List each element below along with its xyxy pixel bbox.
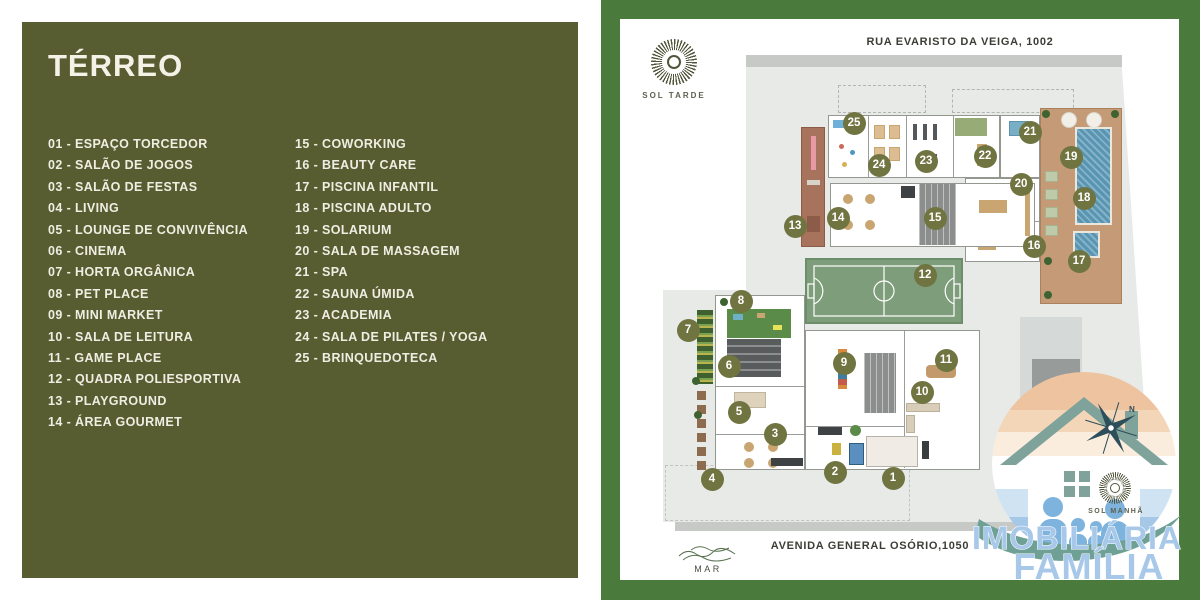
plan-marker-17: 17 <box>1068 250 1091 273</box>
stair-core <box>864 353 896 413</box>
gym-equipment <box>933 124 937 140</box>
round-table <box>865 194 875 204</box>
legend-item-04: 04 - LIVING <box>48 198 295 219</box>
tv-panel <box>922 441 929 459</box>
reading-sofa <box>906 415 915 433</box>
legend-item-22: 22 - SAUNA ÚMIDA <box>295 284 560 305</box>
compass-rose-icon: N <box>1082 399 1140 457</box>
plant <box>1044 291 1052 299</box>
plan-marker-6: 6 <box>718 355 741 378</box>
sun-morning-label: SOL MANHÃ <box>1072 508 1160 515</box>
agency-watermark-logo: IMOBILIÁRIA FAMÍLIA <box>965 359 1195 581</box>
legend-item-06: 06 - CINEMA <box>48 241 295 262</box>
legend-item-03: 03 - SALÃO DE FESTAS <box>48 177 295 198</box>
legend-item-01: 01 - ESPAÇO TORCEDOR <box>48 134 295 155</box>
plan-marker-25: 25 <box>843 112 866 135</box>
plan-marker-21: 21 <box>1019 121 1042 144</box>
plan-marker-10: 10 <box>911 381 934 404</box>
sun-afternoon-label: SOL TARDE <box>628 91 720 100</box>
floorplan-card: RUA EVARISTO DA VEIGA, 1002 AVENIDA GENE… <box>620 19 1179 580</box>
plant <box>1044 257 1052 265</box>
legend-item-20: 20 - SALA DE MASSAGEM <box>295 241 560 262</box>
legend-item-02: 02 - SALÃO DE JOGOS <box>48 155 295 176</box>
yoga-mat <box>889 147 900 161</box>
legend-item-18: 18 - PISCINA ADULTO <box>295 198 560 219</box>
plan-marker-5: 5 <box>728 401 751 424</box>
wall <box>716 386 804 387</box>
reading-sofa <box>906 403 940 412</box>
deck-lounger <box>1045 225 1058 236</box>
kitchen-counter <box>771 458 803 466</box>
plan-marker-4: 4 <box>701 468 724 491</box>
legend-item-21: 21 - SPA <box>295 262 560 283</box>
legend-item-24: 24 - SALA DE PILATES / YOGA <box>295 327 560 348</box>
wall <box>906 116 907 177</box>
plan-marker-12: 12 <box>914 264 937 287</box>
sea-waves-icon <box>677 541 739 563</box>
sports-court <box>805 258 963 324</box>
plan-marker-7: 7 <box>677 319 700 342</box>
party-table <box>744 442 754 452</box>
sun-morning-icon <box>1099 472 1131 504</box>
sauna-room <box>955 118 987 136</box>
legend-column-2: 15 - COWORKING16 - BEAUTY CARE17 - PISCI… <box>295 134 560 434</box>
plan-background: RUA EVARISTO DA VEIGA, 1002 AVENIDA GENE… <box>601 0 1200 600</box>
plan-marker-9: 9 <box>833 352 856 375</box>
legend-item-17: 17 - PISCINA INFANTIL <box>295 177 560 198</box>
game-pool-table <box>849 443 864 465</box>
gym-equipment <box>923 124 927 140</box>
play-equipment <box>807 180 820 185</box>
plan-marker-14: 14 <box>827 207 850 230</box>
street-name-top: RUA EVARISTO DA VEIGA, 1002 <box>815 36 1105 48</box>
toy-hint <box>850 150 855 155</box>
yoga-mat <box>874 125 885 139</box>
plan-marker-2: 2 <box>824 461 847 484</box>
crate <box>832 443 841 455</box>
pet-place-grass <box>727 309 791 338</box>
wall <box>953 116 954 177</box>
bookshelf <box>1025 190 1030 236</box>
round-table-green <box>850 425 861 436</box>
bar-counter <box>818 427 842 435</box>
legend-list: 01 - ESPAÇO TORCEDOR02 - SALÃO DE JOGOS0… <box>48 134 560 434</box>
plan-marker-24: 24 <box>868 154 891 177</box>
bush <box>720 298 728 306</box>
adult-pool <box>1075 127 1112 225</box>
meeting-table <box>979 200 1007 213</box>
plan-marker-16: 16 <box>1023 235 1046 258</box>
legend-item-11: 11 - GAME PLACE <box>48 348 295 369</box>
legend-column-1: 01 - ESPAÇO TORCEDOR02 - SALÃO DE JOGOS0… <box>48 134 295 434</box>
plan-marker-13: 13 <box>784 215 807 238</box>
garden-benches <box>697 391 706 475</box>
plan-marker-8: 8 <box>730 290 753 313</box>
legend-item-23: 23 - ACADEMIA <box>295 305 560 326</box>
bush <box>694 411 702 419</box>
legend-item-08: 08 - PET PLACE <box>48 284 295 305</box>
legend-item-19: 19 - SOLARIUM <box>295 220 560 241</box>
plan-marker-23: 23 <box>915 150 938 173</box>
yoga-mat <box>889 125 900 139</box>
legend-item-16: 16 - BEAUTY CARE <box>295 155 560 176</box>
legend-panel: TÉRREO 01 - ESPAÇO TORCEDOR02 - SALÃO DE… <box>22 22 578 578</box>
fan-space-rug <box>866 436 918 467</box>
deck-lounger <box>1045 171 1058 182</box>
bush <box>692 377 700 385</box>
watermark-line2: FAMÍLIA <box>1014 546 1165 587</box>
toy-hint <box>842 162 847 167</box>
round-table <box>843 194 853 204</box>
round-table <box>865 220 875 230</box>
street-strip-top <box>746 55 1122 67</box>
pet-bench <box>733 314 743 320</box>
plan-marker-20: 20 <box>1010 173 1033 196</box>
court-lines <box>807 260 961 322</box>
wall <box>716 434 804 435</box>
sun-afternoon-icon <box>651 39 697 85</box>
kitchen-counter <box>901 186 915 198</box>
toy-hint <box>839 144 844 149</box>
play-equipment <box>807 216 820 232</box>
solarium-lounger <box>1086 112 1102 128</box>
legend-item-14: 14 - ÁREA GOURMET <box>48 412 295 433</box>
legend-item-09: 09 - MINI MARKET <box>48 305 295 326</box>
legend-item-05: 05 - LOUNGE DE CONVIVÊNCIA <box>48 220 295 241</box>
legend-item-10: 10 - SALA DE LEITURA <box>48 327 295 348</box>
legend-item-07: 07 - HORTA ORGÂNICA <box>48 262 295 283</box>
plan-marker-15: 15 <box>924 207 947 230</box>
compass-north-label: N <box>1129 405 1135 414</box>
legend-item-15: 15 - COWORKING <box>295 134 560 155</box>
gym-equipment <box>913 124 917 140</box>
plant <box>1111 110 1119 118</box>
slide-shape <box>811 136 816 170</box>
setback-dashed-line <box>838 85 926 113</box>
deck-lounger <box>1045 189 1058 200</box>
plan-marker-3: 3 <box>764 423 787 446</box>
pet-toy <box>773 325 782 330</box>
plan-marker-1: 1 <box>882 467 905 490</box>
pet-toy <box>757 313 765 318</box>
plan-marker-22: 22 <box>974 145 997 168</box>
deck-lounger <box>1045 207 1058 218</box>
legend-item-13: 13 - PLAYGROUND <box>48 391 295 412</box>
legend-item-25: 25 - BRINQUEDOTECA <box>295 348 560 369</box>
solarium-lounger <box>1061 112 1077 128</box>
plan-marker-19: 19 <box>1060 146 1083 169</box>
sea-label: MAR <box>677 564 739 574</box>
plan-marker-11: 11 <box>935 349 958 372</box>
plan-marker-18: 18 <box>1073 187 1096 210</box>
plant <box>1042 110 1050 118</box>
party-table <box>744 458 754 468</box>
rooms-lower-left <box>715 295 805 470</box>
page-title: TÉRREO <box>48 48 183 84</box>
legend-item-12: 12 - QUADRA POLIESPORTIVA <box>48 369 295 390</box>
organic-garden-strip <box>697 310 713 384</box>
